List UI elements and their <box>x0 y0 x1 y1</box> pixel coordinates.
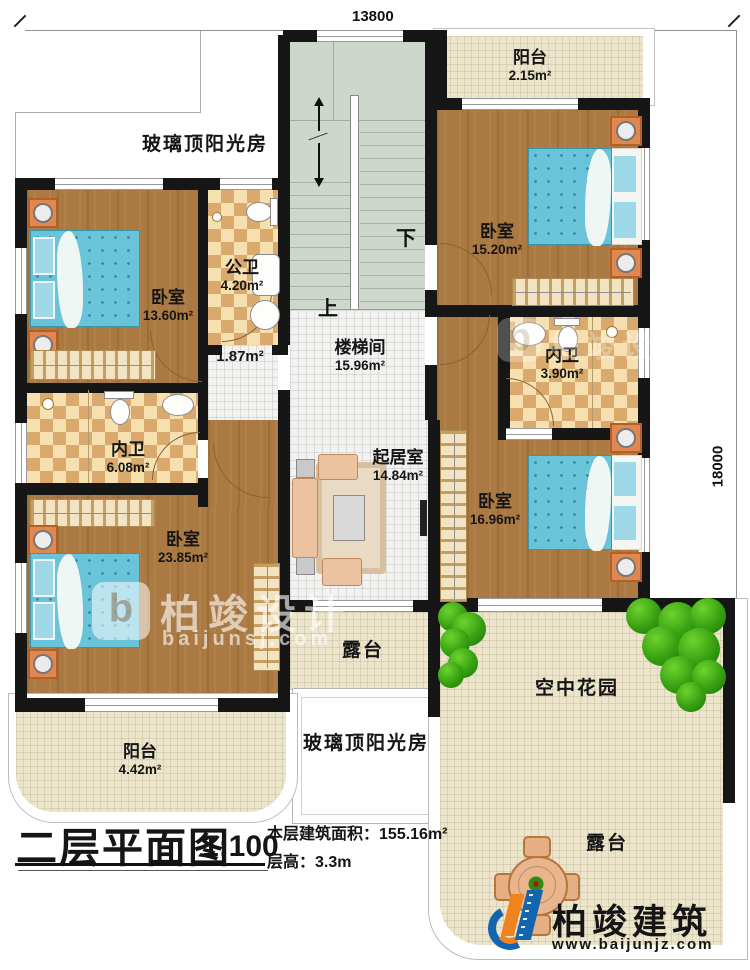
wall <box>272 345 288 355</box>
dimension-tick <box>728 15 741 28</box>
room-label-hall: 1.87m² <box>216 348 264 366</box>
room-label-balcony-tr: 阳台 2.15m² <box>509 48 552 85</box>
title-area-value: 155.16m² <box>379 826 448 843</box>
armchair <box>318 454 358 480</box>
watermark-site: baijunsj.com <box>162 628 332 651</box>
sofa <box>292 478 318 558</box>
room-label-public-bath: 公卫 4.20m² <box>221 258 264 295</box>
side-table <box>296 459 315 478</box>
toilet-tank-icon <box>104 391 134 399</box>
room-label-living: 起居室 14.84m² <box>373 448 424 485</box>
sunroom-outline <box>15 112 201 113</box>
nightstand <box>610 423 642 453</box>
watermark-logo-2 <box>497 318 541 362</box>
wardrobe <box>512 278 634 306</box>
stair-divider <box>350 95 359 310</box>
blanket <box>585 456 611 551</box>
shower-valve-icon <box>42 398 54 410</box>
sink-icon <box>162 394 194 416</box>
footer-logo-site: www.baijunjz.com <box>552 936 713 953</box>
title-floor-row: 层高：3.3m <box>267 848 351 872</box>
blanket <box>57 554 83 649</box>
window <box>317 30 403 42</box>
sunroom-outline <box>200 31 201 113</box>
room-label-bedroom-tr: 卧室 15.20m² <box>472 222 522 259</box>
wall <box>425 290 437 317</box>
window <box>15 248 27 314</box>
tree-cluster <box>438 602 490 690</box>
stair-up-label: 上 <box>318 292 338 321</box>
pillow <box>33 559 55 597</box>
wall <box>15 483 208 495</box>
door-gap <box>506 428 552 440</box>
room-label-sky-garden: 空中花园 <box>535 678 619 701</box>
side-table <box>296 556 315 575</box>
stair-down-label: 下 <box>396 222 416 251</box>
tv <box>420 500 427 536</box>
pillow <box>33 602 55 640</box>
title-underline-2 <box>18 870 268 871</box>
sunroom-outline <box>15 112 16 178</box>
floor-plan: 13800 18000 玻璃顶阳光房 下 上 <box>0 0 750 970</box>
nightstand <box>610 248 642 278</box>
watermark-brand-2: 柏竣设计 <box>550 322 694 366</box>
wall <box>425 35 437 245</box>
sliding-door <box>462 98 578 110</box>
pillow <box>612 200 638 240</box>
blanket <box>585 149 611 246</box>
dimension-label-right: 18000 <box>710 437 727 497</box>
stair-steps-right <box>360 120 425 310</box>
wardrobe <box>440 430 467 602</box>
sliding-door <box>478 598 602 612</box>
nightstand <box>610 116 642 146</box>
room-label-terrace-br: 露台 <box>586 833 628 856</box>
window <box>220 178 272 190</box>
dimension-label-top: 13800 <box>352 8 394 25</box>
bed <box>30 230 140 327</box>
window <box>55 178 163 190</box>
tree-blob <box>676 682 706 712</box>
nightstand <box>610 552 642 582</box>
nightstand <box>28 649 58 679</box>
title-floor-value: 3.3m <box>315 854 351 871</box>
title-underline <box>15 863 265 866</box>
room-label-terrace-mid: 露台 <box>342 640 384 663</box>
stair-edge <box>290 309 425 310</box>
bath-partition <box>88 390 89 483</box>
room-label-sunroom-top: 玻璃顶阳光房 <box>142 134 268 157</box>
tree-cluster <box>616 598 728 716</box>
title-area-row: 本层建筑面积：155.16m² <box>267 820 448 844</box>
watermark-logo <box>92 582 150 640</box>
pillow <box>612 460 638 498</box>
wardrobe <box>30 350 156 380</box>
stair-landing-line <box>333 35 334 120</box>
toilet-tank-icon <box>270 198 278 226</box>
patio-chair <box>523 836 551 858</box>
coffee-table <box>333 495 365 541</box>
title-area-label: 本层建筑面积： <box>267 826 379 843</box>
room-label-bedroom-r: 卧室 16.96m² <box>470 492 520 529</box>
pillow <box>612 504 638 542</box>
toilet-icon <box>110 399 130 425</box>
room-label-bedroom-tl: 卧室 13.60m² <box>143 288 193 325</box>
shower-valve-icon <box>212 212 222 222</box>
toilet-icon <box>246 202 272 222</box>
room-label-inner-bath-l: 内卫 6.08m² <box>107 440 150 477</box>
room-label-sunroom-bottom: 玻璃顶阳光房 <box>303 733 429 756</box>
room-label-bedroom-bl: 卧室 23.85m² <box>158 530 208 567</box>
stair-arrow-down <box>314 178 324 192</box>
window <box>15 563 27 633</box>
wall <box>425 365 437 420</box>
title-floor-label: 层高： <box>267 854 315 871</box>
sliding-door <box>85 698 218 712</box>
window <box>15 423 27 483</box>
pillow <box>612 154 638 194</box>
wardrobe <box>30 499 155 527</box>
blanket <box>57 231 83 328</box>
nightstand <box>28 198 58 228</box>
nightstand <box>28 525 58 555</box>
pillow <box>33 237 55 275</box>
dimension-tick <box>14 15 27 28</box>
wall <box>278 35 290 345</box>
bed <box>528 148 612 245</box>
sink-icon <box>250 300 280 330</box>
pillow <box>33 281 55 319</box>
bed <box>528 455 612 550</box>
sunroom-bottom-inner <box>301 697 431 815</box>
footer-logo-icon <box>488 890 546 956</box>
tree-blob <box>438 662 464 688</box>
room-label-balcony-bl: 阳台 4.42m² <box>119 742 162 779</box>
room-label-stairwell: 楼梯间 15.96m² <box>335 338 386 375</box>
stair-arrow-up <box>314 92 324 106</box>
